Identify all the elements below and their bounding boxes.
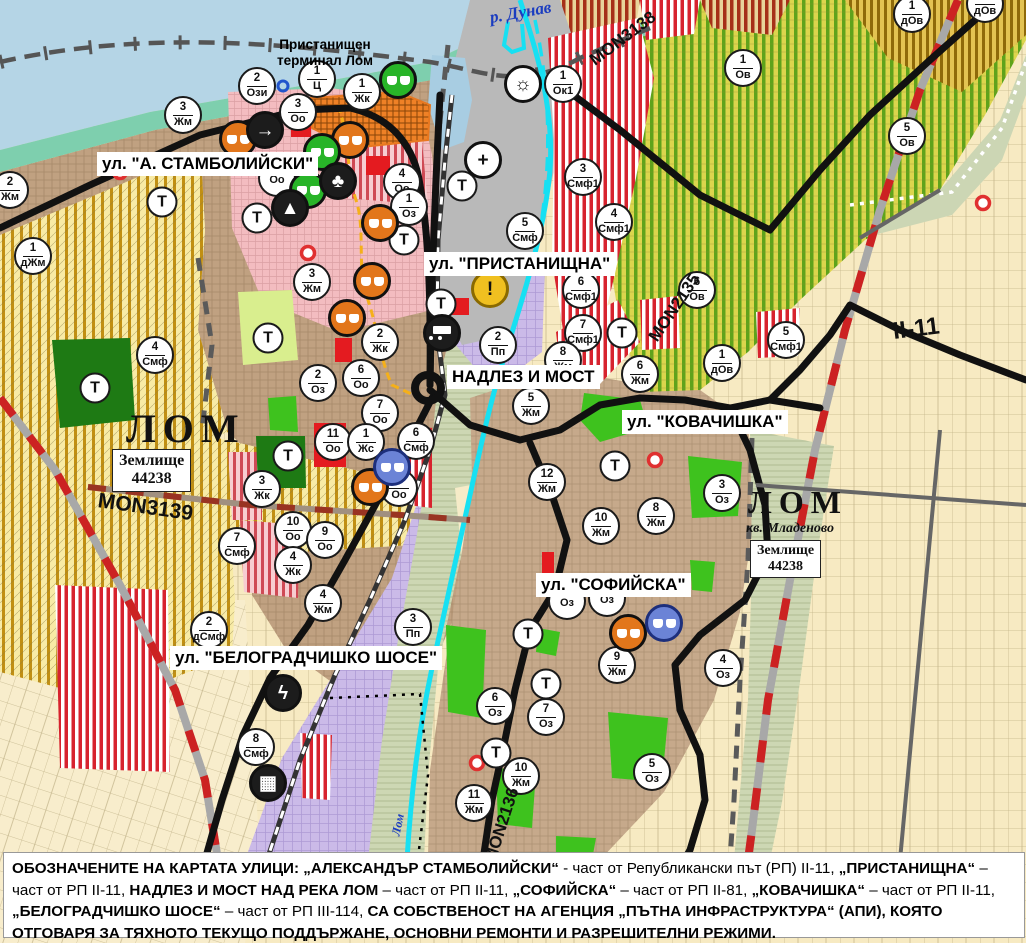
zone-marker-number: 3 [295, 99, 301, 112]
terrain-marker: Т [531, 669, 562, 700]
zone-marker-number: 8 [653, 503, 659, 516]
truck-terminal-icon [423, 314, 461, 352]
terrain-marker: Т [253, 323, 284, 354]
zone-marker: 6Смф1 [562, 271, 600, 309]
zone-marker: 4Смф [136, 336, 174, 374]
zone-marker-number: 3 [580, 164, 586, 177]
zone-marker-code: Смф1 [565, 292, 597, 303]
terrain-marker: Т [600, 451, 631, 482]
zone-marker-number: 1 [363, 429, 369, 442]
terrain-marker: Т [80, 373, 111, 404]
notice-segment: – част от РП II-81, [616, 882, 751, 899]
zone-marker-number: 1 [909, 1, 915, 14]
zone-marker-number: 1 [719, 350, 725, 363]
zone-marker-number: 3 [410, 614, 416, 627]
zone-marker-number: 7 [234, 533, 240, 546]
monument-arch-icon: ▲ [271, 189, 309, 227]
zone-marker-number: 1 [560, 71, 566, 84]
zone-marker-code: Смф1 [770, 342, 802, 353]
zone-marker-code: Оо [317, 542, 332, 553]
zone-marker: 3Пп [394, 608, 432, 646]
zone-marker-code: Ов [899, 138, 914, 149]
zone-marker: 2Оз [299, 364, 337, 402]
theatre-mask-icon [609, 614, 647, 652]
zone-marker-code: Смф [243, 749, 269, 760]
zone-marker-code: Жм [174, 117, 192, 128]
zone-marker-code: Пп [491, 347, 506, 358]
zone-marker: 7Смф [218, 527, 256, 565]
zone-marker-number: 3 [309, 269, 315, 282]
land-unit-box-right: Землище44238 [750, 540, 821, 578]
zone-marker-code: Жм [303, 284, 321, 295]
zone-marker: 5Смф1 [767, 321, 805, 359]
zone-marker-code: Оз [560, 598, 574, 609]
street-label: ул. "БЕЛОГРАДЧИШКО ШОСЕ" [170, 646, 442, 670]
zone-marker-number: 6 [578, 277, 584, 290]
notice-segment: „БЕЛОГРАДЧИШКО ШОСЕ“ [12, 903, 221, 920]
zone-marker-code: Ок1 [553, 86, 573, 97]
zone-marker: 12Жм [528, 463, 566, 501]
zone-marker: 6Жм [621, 355, 659, 393]
zone-marker-code: Ози [247, 88, 268, 99]
district-label: кв. Младеново [746, 521, 834, 537]
zone-marker-code: Оз [716, 670, 730, 681]
theatre-mask-icon [373, 448, 411, 486]
zone-marker: 3Жм [293, 263, 331, 301]
zone-marker: 1дЖм [14, 237, 52, 275]
zone-marker-number: 2 [495, 332, 501, 345]
zone-marker-number: 6 [358, 365, 364, 378]
zone-marker: 2Пп [479, 326, 517, 364]
zone-marker-code: Жм [465, 805, 483, 816]
zone-marker-number: 2 [315, 370, 321, 383]
lighthouse-sun-icon: ☼ [504, 65, 542, 103]
zone-marker-number: 5 [904, 123, 910, 136]
zone-marker: 5Оз [633, 753, 671, 791]
zone-marker-number: 8 [253, 734, 259, 747]
town-label-left: ЛОМ [126, 405, 246, 452]
zone-marker: 5Жм [512, 387, 550, 425]
zone-marker-number: 4 [720, 655, 726, 668]
zone-marker-code: Оз [539, 719, 553, 730]
zone-marker-number: 9 [614, 652, 620, 665]
zone-marker: 3Жм [164, 96, 202, 134]
zone-marker-number: 7 [543, 704, 549, 717]
zone-marker-code: Смф [224, 548, 250, 559]
zone-marker-number: 11 [468, 790, 480, 803]
theatre-mask-icon [379, 61, 417, 99]
zone-marker-code: Жк [285, 567, 300, 578]
zone-marker: 4Оз [704, 649, 742, 687]
notice-segment: ОБОЗНАЧЕНИТЕ НА КАРТАТА УЛИЦИ: „АЛЕКСАНД… [12, 860, 559, 877]
zone-marker-code: Ов [735, 70, 750, 81]
zone-marker-code: дСмф [193, 632, 226, 643]
terrain-marker: Т [147, 187, 178, 218]
zone-marker-code: Оз [311, 385, 325, 396]
street-label: ул. "КОВАЧИШКА" [622, 410, 788, 434]
terrain-marker: Т [607, 318, 638, 349]
zone-marker-code: Оо [269, 175, 284, 186]
zone-marker-number: 7 [377, 400, 383, 413]
zone-marker-code: Жм [592, 528, 610, 539]
street-label: ул. "А. СТАМБОЛИЙСКИ" [97, 152, 318, 176]
zone-marker: 2дСмф [190, 611, 228, 649]
notice-segment: „ПРИСТАНИЩНА“ [839, 860, 975, 877]
zone-marker: 11Жм [455, 784, 493, 822]
zone-marker: 2Ози [238, 67, 276, 105]
zone-marker-number: 1 [30, 243, 36, 256]
zone-marker: 5Смф [506, 212, 544, 250]
zone-marker: 1Ов [724, 49, 762, 87]
zone-marker-number: 3 [719, 480, 725, 493]
zone-marker: 3Смф1 [564, 158, 602, 196]
theatre-mask-icon [361, 204, 399, 242]
zone-marker: 6Оз [476, 687, 514, 725]
zone-marker-code: Жк [354, 94, 369, 105]
zone-marker-number: 4 [320, 590, 326, 603]
theatre-mask-icon [353, 262, 391, 300]
zone-marker-code: Смф [142, 357, 168, 368]
notice-segment: „КОВАЧИШКА“ [752, 882, 865, 899]
zone-marker-code: Смф [512, 233, 538, 244]
zone-marker-code: Жм [631, 376, 649, 387]
zone-marker-code: дОв [901, 16, 923, 27]
zone-marker-code: Оо [353, 380, 368, 391]
town-label-right: ЛОМ [748, 484, 848, 521]
zone-marker-code: дОв [974, 6, 996, 17]
park-club-icon: ♣ [319, 162, 357, 200]
zone-marker-code: Оо [290, 114, 305, 125]
zone-marker-number: 2 [254, 73, 260, 86]
zone-marker-number: 12 [541, 469, 554, 482]
road-number-label: II-11 [891, 312, 941, 345]
zone-marker-number: 1 [359, 79, 365, 92]
zone-marker-number: 4 [152, 342, 158, 355]
zone-marker-code: Смф [403, 443, 429, 454]
zone-marker-number: 5 [522, 218, 528, 231]
notice-segment: – част от РП II-11, [865, 882, 995, 899]
zone-marker: 1Жк [343, 73, 381, 111]
zone-marker-code: Жм [608, 667, 626, 678]
zone-marker: 10Жм [582, 507, 620, 545]
zone-marker: 7Оз [527, 698, 565, 736]
zone-marker-number: 6 [637, 361, 643, 374]
zone-marker-code: дОв [711, 365, 733, 376]
zone-marker: 9Оо [306, 521, 344, 559]
zone-marker: 1дОв [703, 344, 741, 382]
zone-marker-number: 10 [287, 517, 300, 530]
zone-marker: 4Жм [304, 584, 342, 622]
zone-marker-code: Жс [358, 444, 374, 455]
zone-marker-code: Ц [313, 81, 321, 92]
zone-marker-code: Жк [254, 491, 269, 502]
zone-marker-number: 4 [611, 209, 617, 222]
zone-marker-number: 10 [595, 513, 608, 526]
zone-marker-number: 2 [377, 329, 383, 342]
notice-segment: - част от Републикански път (РП) II-11, [559, 860, 839, 877]
zone-marker-number: 2 [206, 617, 212, 630]
zone-marker-number: 3 [180, 102, 186, 115]
zone-marker-number: 9 [322, 527, 328, 540]
zone-marker-number: 3 [259, 476, 265, 489]
zone-marker: 4Жк [274, 546, 312, 584]
notice-segment: – част от РП II-11, [378, 882, 512, 899]
zone-marker: 5Ов [888, 117, 926, 155]
terrain-marker: Т [273, 441, 304, 472]
zone-marker-number: 1 [982, 0, 988, 3]
zone-marker-code: Жм [647, 518, 665, 529]
one-way-arrow-icon: → [246, 111, 284, 149]
zone-marker: 1Ок1 [544, 65, 582, 103]
zone-marker: 8Жм [637, 497, 675, 535]
port-terminal-label: Пристанищентерминал Лом [277, 37, 373, 68]
rail-crossing-icon: ▦ [249, 764, 287, 802]
power-bolt-icon: ϟ [264, 674, 302, 712]
zone-marker-number: 5 [528, 393, 534, 406]
zone-marker: 3Оо [279, 93, 317, 131]
zone-marker-code: Оз [645, 774, 659, 785]
notice-segment: „СОФИЙСКА“ [513, 882, 617, 899]
terrain-marker: Т [481, 738, 512, 769]
zone-marker-code: Смф1 [598, 224, 630, 235]
zone-marker-code: Жм [1, 192, 19, 203]
zone-marker-code: Смф1 [567, 179, 599, 190]
zone-marker-number: 6 [413, 428, 419, 441]
port-cross-icon: + [464, 141, 502, 179]
notice-segment: – част от РП III-114, [221, 903, 368, 920]
zone-marker-number: 8 [560, 347, 566, 360]
street-label: ул. "СОФИЙСКА" [536, 573, 691, 597]
zone-marker-number: 5 [783, 327, 789, 340]
zone-marker-number: 6 [492, 693, 498, 706]
zone-marker-code: Жк [372, 344, 387, 355]
zone-marker-code: Оз [715, 495, 729, 506]
zone-marker-number: 10 [515, 763, 528, 776]
zone-marker: 3Оз [703, 474, 741, 512]
zone-marker-number: 5 [649, 759, 655, 772]
terrain-marker: Т [242, 203, 273, 234]
zone-marker-number: 1 [406, 194, 412, 207]
ownership-notice: ОБОЗНАЧЕНИТЕ НА КАРТАТА УЛИЦИ: „АЛЕКСАНД… [3, 852, 1025, 938]
zone-marker: 8Смф [237, 728, 275, 766]
zone-marker-number: 11 [327, 429, 339, 442]
zone-marker: 6Оо [342, 359, 380, 397]
zone-marker-number: 4 [290, 552, 296, 565]
zone-smf-stripe-sw [55, 585, 170, 772]
zone-marker-code: Оз [488, 708, 502, 719]
street-label: НАДЛЕЗ И МОСТ [447, 365, 600, 389]
street-label: ул. "ПРИСТАНИЩНА" [424, 252, 615, 276]
zone-marker: 4Смф1 [595, 203, 633, 241]
notice-segment: НАДЛЕЗ И МОСТ НАД РЕКА ЛОМ [129, 882, 378, 899]
zone-marker-code: Оо [325, 444, 340, 455]
zone-marker-code: Оо [285, 532, 300, 543]
zone-marker-code: Жм [538, 484, 556, 495]
zone-marker-code: дЖм [20, 258, 45, 269]
zone-marker-code: Оз [402, 209, 416, 220]
zone-marker: 3Жк [243, 470, 281, 508]
zone-marker-code: Пп [406, 629, 421, 640]
zone-marker-number: 4 [399, 169, 405, 182]
land-unit-box-left: Землище44238 [112, 449, 191, 492]
theatre-mask-icon [645, 604, 683, 642]
zone-marker-number: 7 [580, 320, 586, 333]
theatre-mask-icon [328, 299, 366, 337]
zone-marker-code: Жм [522, 408, 540, 419]
terrain-marker: Т [513, 619, 544, 650]
zone-marker: 2Жк [361, 323, 399, 361]
zone-marker-number: 2 [7, 177, 13, 190]
zone-marker-code: Оо [391, 490, 406, 501]
zone-marker-code: Жм [314, 605, 332, 616]
zoning-map: 2Ози1Ц3Оо1Жк1Ок11Ов1дОв1дОв5Ов2Жм3Жм1дЖм… [0, 0, 1026, 943]
zone-marker-number: 1 [740, 55, 746, 68]
